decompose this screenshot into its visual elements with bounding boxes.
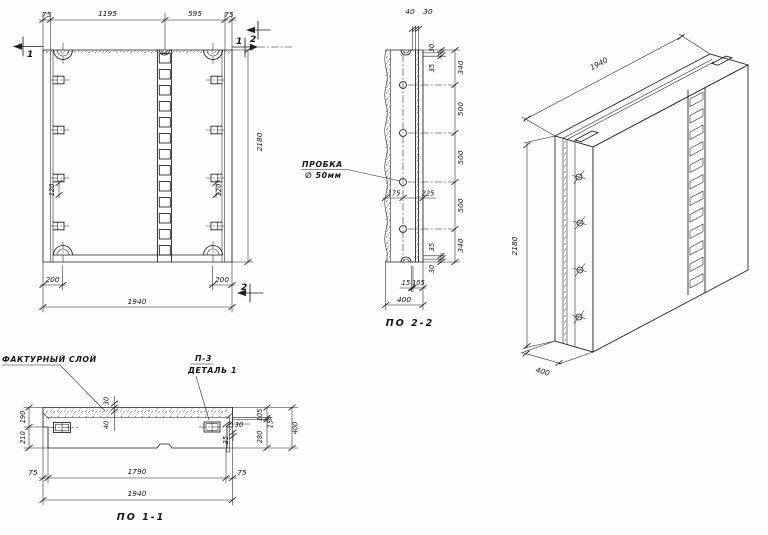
- panel-technical-drawing: 75 1195 595 75 2180 200 200 1940 120 120: [0, 0, 768, 535]
- dim-s11-280: 280: [256, 431, 264, 444]
- dim-s22-15: 15: [402, 279, 410, 287]
- key-notch: [159, 198, 170, 208]
- facing-layer-label: ФАКТУРНЫЙ СЛОЙ: [2, 355, 97, 364]
- dim-s11-35-right: 35: [222, 436, 230, 444]
- section-1-1-view: ФАКТУРНЫЙ СЛОЙ П-3 ДЕТАЛЬ 1 190 210 30 4…: [2, 354, 300, 523]
- dim-s22-500-2: 500: [456, 150, 465, 164]
- dim-front-200-right: 200: [215, 275, 229, 284]
- anchor-loop: [206, 174, 224, 182]
- section-2-2-body: [385, 50, 423, 262]
- lifting-hook: [54, 240, 73, 262]
- dim-s11-190: 190: [19, 411, 27, 424]
- dim-s11-15: 15: [267, 420, 275, 428]
- anchor-loop: [51, 126, 69, 134]
- dim-front-top-595: 595: [188, 9, 202, 18]
- dim-iso-depth: 400: [535, 365, 551, 378]
- facing-layer-hatch: [45, 408, 229, 417]
- dim-s22-400: 400: [397, 295, 411, 304]
- dim-front-200-left: 200: [45, 275, 59, 284]
- front-elevation-view: 75 1195 595 75 2180 200 200 1940 120 120: [13, 9, 292, 312]
- dim-s22-175: 175: [388, 190, 401, 198]
- key-notch: [159, 166, 170, 176]
- dim-front-top-margin-left: 75: [42, 10, 52, 19]
- dim-s11-75-left: 75: [28, 468, 38, 477]
- anchor-loop: [206, 126, 224, 134]
- key-notch: [159, 182, 170, 192]
- dim-s11-105: 105: [256, 409, 264, 422]
- lifting-hook: [401, 257, 411, 262]
- blueprint-page: 75 1195 595 75 2180 200 200 1940 120 120: [0, 0, 768, 535]
- lifting-hooks: [54, 43, 223, 262]
- rib-hatch: [416, 51, 419, 262]
- anchor-loops: [51, 76, 224, 230]
- panel-outline: [43, 50, 232, 262]
- dim-s22-right-30-bottom: 30: [428, 265, 436, 273]
- facing-layer-hatch: [386, 51, 391, 261]
- anchor-loop: [51, 222, 69, 230]
- plug-callout-size: ∅ 50мм: [305, 171, 342, 180]
- key-notch: [159, 102, 170, 112]
- facing-layer-leader: [60, 365, 105, 411]
- lifting-hook: [54, 43, 73, 65]
- anchor-loop: [51, 174, 69, 182]
- lifting-hook: [204, 43, 223, 65]
- bottom-centering-notch: [157, 444, 172, 448]
- detail-label: ДЕТАЛЬ 1: [187, 366, 237, 375]
- section-mark-1-right: 1: [236, 37, 242, 47]
- key-notch: [159, 134, 170, 144]
- dim-s11-210: 210: [19, 431, 27, 444]
- key-notch: [159, 118, 170, 128]
- section-1-1-title: ПО 1-1: [117, 512, 166, 523]
- key-strip: [158, 50, 172, 262]
- dim-s22-right-35-top: 35: [428, 64, 436, 72]
- anchor-loop: [206, 222, 224, 230]
- lifting-hook: [204, 240, 223, 262]
- section-2-2-view: 40 30 30 35 35 30 340 500 500 500 340 17…: [301, 7, 465, 329]
- dim-iso-length: 1940: [588, 55, 609, 72]
- dim-front-120-left: 120: [48, 184, 56, 197]
- key-notch: [159, 214, 170, 224]
- section-mark-1-left: 1: [27, 50, 33, 60]
- iso-left-face: [555, 136, 593, 352]
- anchor-loop: [206, 76, 224, 84]
- dim-s22-225: 225: [422, 190, 435, 198]
- plug-callout-label: ПРОБКА: [302, 160, 343, 169]
- embedded-part-left: [49, 423, 78, 433]
- section-2-2-dimensions: 40 30 30 35 35 30 340 500 500 500 340 17…: [382, 7, 465, 310]
- isometric-view: 1940 2180 400: [510, 34, 748, 378]
- dim-s11-75-right: 75: [237, 468, 247, 477]
- key-notch: [159, 86, 170, 96]
- iso-panel-body: [555, 54, 748, 352]
- section-1-1-body: [43, 408, 233, 453]
- dim-front-top-1195: 1195: [98, 9, 117, 18]
- dim-s22-40: 40: [405, 7, 415, 16]
- dim-front-120-right: 120: [215, 184, 223, 197]
- dim-s22-30-top: 30: [423, 7, 433, 16]
- dim-s11-30-mid: 30: [103, 397, 111, 405]
- dim-s11-400: 400: [292, 422, 300, 435]
- key-notch: [159, 150, 170, 160]
- dim-s22-340-bottom: 340: [456, 238, 465, 252]
- dim-front-height: 2180: [255, 132, 264, 151]
- iso-seam-hatch: [563, 138, 567, 344]
- section-mark-2-top: 2: [250, 35, 256, 45]
- front-dimensions: 75 1195 595 75 2180 200 200 1940 120 120: [39, 9, 264, 312]
- dim-s22-500-1: 500: [456, 102, 465, 116]
- detail-ref-label: П-3: [195, 354, 212, 363]
- section-2-2-title: ПО 2-2: [386, 318, 435, 329]
- dim-iso-height: 2180: [510, 236, 519, 255]
- anchor-loop: [51, 76, 69, 84]
- dim-front-width: 1940: [128, 297, 147, 306]
- lifting-hook: [401, 50, 411, 55]
- dim-s22-right-30-top: 30: [428, 44, 436, 52]
- dim-s22-500-3: 500: [456, 198, 465, 212]
- key-notch: [159, 230, 170, 240]
- embedded-part-right: [199, 422, 225, 432]
- dim-front-top-margin-right: 75: [224, 10, 234, 19]
- dim-s11-30-right: 30: [235, 421, 243, 429]
- dim-s11-40-mid: 40: [103, 421, 111, 429]
- dim-s11-1940: 1940: [128, 489, 147, 498]
- facing-layer-callout: ФАКТУРНЫЙ СЛОЙ: [2, 355, 105, 411]
- dim-s22-105: 105: [412, 279, 425, 287]
- key-notch: [159, 70, 170, 80]
- plug-callout-leader: [347, 170, 400, 182]
- dim-s11-1790: 1790: [128, 467, 147, 476]
- dim-s22-340-top: 340: [456, 60, 465, 74]
- section-mark-2-bottom: 2: [241, 283, 247, 293]
- dim-s22-right-35-bottom: 35: [428, 243, 436, 251]
- key-notch: [159, 246, 170, 256]
